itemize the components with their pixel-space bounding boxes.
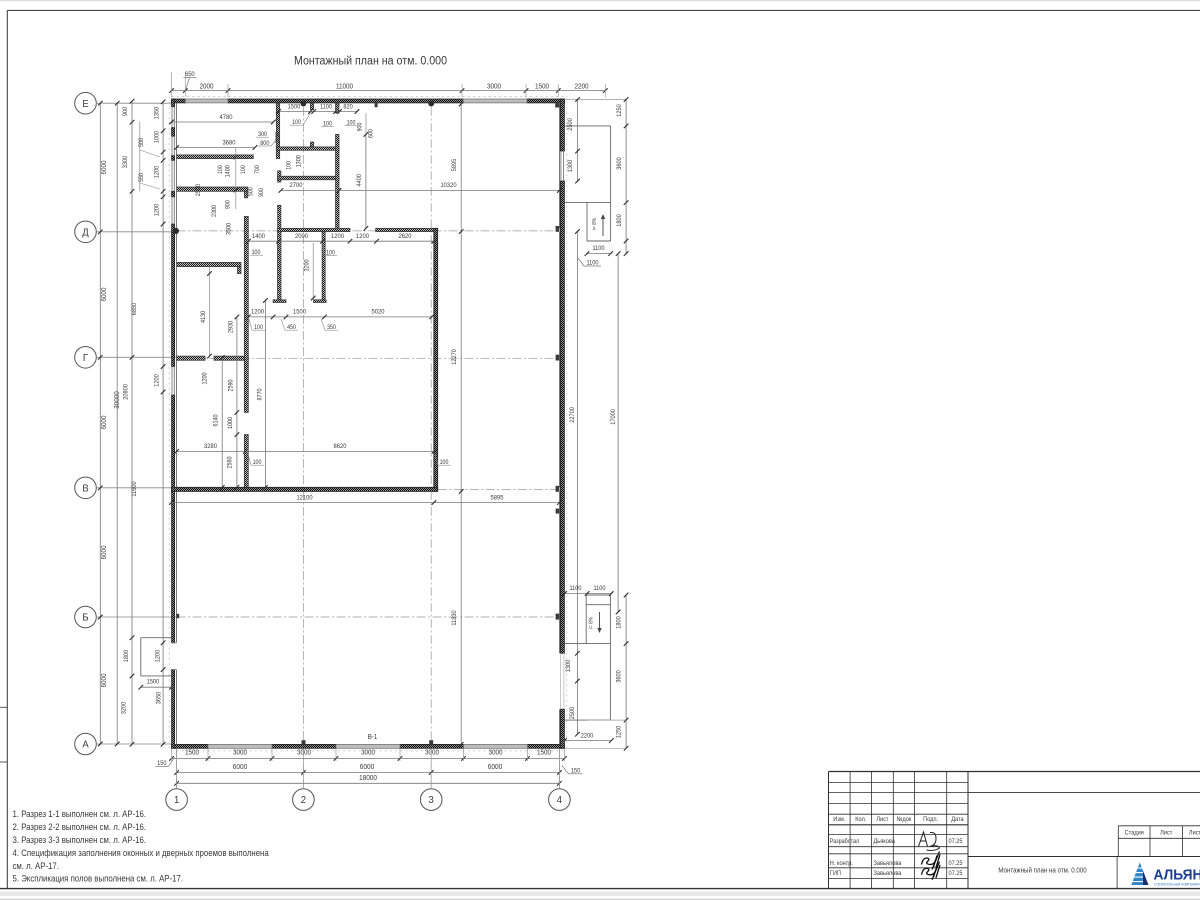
svg-text:1500: 1500 bbox=[293, 308, 306, 315]
svg-text:650: 650 bbox=[185, 71, 195, 78]
svg-text:6000: 6000 bbox=[100, 673, 107, 687]
svg-text:07.25: 07.25 bbox=[949, 870, 964, 878]
svg-text:1800: 1800 bbox=[124, 649, 130, 662]
svg-text:Завьялова: Завьялова bbox=[874, 859, 902, 867]
svg-text:Монтажный план на отм. 0.000: Монтажный план на отм. 0.000 bbox=[294, 55, 447, 67]
svg-text:2300: 2300 bbox=[212, 204, 218, 217]
svg-text:6000: 6000 bbox=[100, 160, 107, 174]
svg-text:6850: 6850 bbox=[132, 302, 138, 315]
svg-text:Монтажный план на отм. 0.000: Монтажный план на отм. 0.000 bbox=[998, 866, 1087, 874]
svg-text:2200: 2200 bbox=[574, 83, 588, 90]
svg-text:1500: 1500 bbox=[537, 749, 551, 756]
svg-text:3650: 3650 bbox=[156, 691, 162, 704]
svg-text:6000: 6000 bbox=[100, 545, 107, 559]
svg-text:1250: 1250 bbox=[617, 104, 623, 117]
svg-text:2500: 2500 bbox=[196, 183, 202, 196]
svg-text:Б: Б bbox=[82, 612, 88, 623]
svg-text:22700: 22700 bbox=[570, 407, 576, 423]
svg-text:№док: №док bbox=[896, 815, 911, 823]
svg-text:12270: 12270 bbox=[452, 349, 458, 365]
svg-text:Стадия: Стадия bbox=[1125, 829, 1144, 837]
svg-text:1000: 1000 bbox=[275, 132, 281, 144]
svg-text:500: 500 bbox=[248, 187, 254, 196]
svg-text:1. Разрез 1-1 выполнен см. л.: 1. Разрез 1-1 выполнен см. л. АР-16. bbox=[13, 809, 147, 820]
svg-text:5895: 5895 bbox=[452, 158, 458, 171]
svg-text:1200: 1200 bbox=[251, 308, 264, 315]
svg-text:Кол.: Кол. bbox=[855, 815, 866, 823]
svg-text:1200: 1200 bbox=[356, 233, 369, 240]
svg-text:2620: 2620 bbox=[399, 233, 412, 240]
svg-text:Завьялова: Завьялова bbox=[874, 870, 902, 878]
svg-text:Дата: Дата bbox=[951, 815, 964, 823]
svg-text:3. Разрез 3-3 выполнен см. л.: 3. Разрез 3-3 выполнен см. л. АР-16. bbox=[13, 834, 147, 845]
svg-text:3000: 3000 bbox=[361, 749, 375, 756]
svg-text:100: 100 bbox=[241, 165, 247, 174]
svg-text:1400: 1400 bbox=[225, 165, 231, 178]
svg-text:Разработал: Разработал bbox=[830, 839, 860, 846]
svg-text:1800: 1800 bbox=[617, 214, 623, 227]
svg-text:1800: 1800 bbox=[616, 616, 622, 629]
svg-text:8620: 8620 bbox=[334, 443, 347, 450]
svg-text:1: 1 bbox=[174, 795, 179, 806]
svg-text:3600: 3600 bbox=[616, 670, 622, 683]
svg-text:i= 8%: i= 8% bbox=[588, 616, 594, 629]
svg-text:3000: 3000 bbox=[233, 749, 247, 756]
svg-text:1100: 1100 bbox=[593, 586, 606, 592]
svg-text:11600: 11600 bbox=[132, 481, 138, 497]
svg-text:Д: Д bbox=[82, 227, 89, 238]
svg-text:3000: 3000 bbox=[488, 749, 502, 756]
svg-text:3600: 3600 bbox=[617, 157, 623, 170]
svg-text:Листов: Листов bbox=[1189, 829, 1200, 837]
svg-text:6140: 6140 bbox=[213, 414, 219, 427]
svg-text:30000: 30000 bbox=[114, 391, 121, 409]
svg-text:8770: 8770 bbox=[257, 388, 263, 401]
svg-text:2. Разрез 2-2 выполнен см. л.: 2. Разрез 2-2 выполнен см. л. АР-16. bbox=[13, 822, 147, 833]
svg-text:4400: 4400 bbox=[357, 173, 363, 186]
svg-text:4. Спецификация заполнения око: 4. Спецификация заполнения оконных и две… bbox=[13, 847, 270, 858]
svg-text:2700: 2700 bbox=[290, 182, 303, 189]
svg-text:20800: 20800 bbox=[123, 384, 129, 400]
svg-text:12100: 12100 bbox=[296, 494, 313, 501]
svg-text:11000: 11000 bbox=[336, 83, 353, 90]
svg-text:18000: 18000 bbox=[359, 775, 377, 782]
svg-text:Лист: Лист bbox=[1160, 829, 1172, 837]
svg-text:1400: 1400 bbox=[252, 233, 265, 240]
svg-text:2560: 2560 bbox=[227, 456, 233, 469]
svg-text:100: 100 bbox=[218, 165, 224, 174]
svg-text:3200: 3200 bbox=[304, 259, 310, 272]
svg-text:17000: 17000 bbox=[611, 409, 617, 425]
svg-text:550: 550 bbox=[139, 172, 145, 182]
svg-text:820: 820 bbox=[343, 104, 353, 110]
svg-text:2000: 2000 bbox=[199, 83, 213, 90]
svg-text:07.25: 07.25 bbox=[949, 838, 964, 846]
svg-text:Подп.: Подп. bbox=[923, 815, 938, 823]
svg-text:Лист: Лист bbox=[876, 815, 888, 823]
svg-text:1500: 1500 bbox=[147, 679, 160, 685]
svg-text:4: 4 bbox=[557, 795, 563, 806]
svg-text:2590: 2590 bbox=[228, 379, 234, 392]
svg-text:5. Экспликация полов выполнена: 5. Экспликация полов выполнена см. л. АР… bbox=[13, 873, 183, 884]
svg-text:4130: 4130 bbox=[201, 310, 207, 323]
svg-text:900: 900 bbox=[357, 123, 363, 132]
svg-text:1300: 1300 bbox=[568, 159, 574, 172]
svg-text:3200: 3200 bbox=[121, 701, 127, 714]
svg-text:В-1: В-1 bbox=[368, 734, 378, 741]
svg-text:1000: 1000 bbox=[154, 130, 160, 143]
svg-text:500: 500 bbox=[139, 137, 145, 147]
svg-text:см. л. АР-17.: см. л. АР-17. bbox=[13, 860, 59, 871]
svg-text:3680: 3680 bbox=[223, 139, 236, 146]
svg-text:строительная компания: строительная компания bbox=[1154, 881, 1200, 886]
svg-text:Г: Г bbox=[83, 353, 89, 364]
svg-text:А: А bbox=[82, 739, 89, 750]
svg-text:4780: 4780 bbox=[220, 113, 233, 120]
svg-text:3000: 3000 bbox=[297, 749, 311, 756]
svg-text:900: 900 bbox=[225, 200, 231, 209]
svg-text:1500: 1500 bbox=[288, 104, 301, 110]
svg-text:3300: 3300 bbox=[123, 155, 129, 168]
svg-text:1200: 1200 bbox=[154, 203, 160, 216]
svg-text:100: 100 bbox=[286, 161, 292, 170]
svg-text:1350: 1350 bbox=[154, 106, 160, 119]
svg-text:1500: 1500 bbox=[185, 749, 199, 756]
svg-text:6000: 6000 bbox=[100, 287, 107, 301]
svg-text:6000: 6000 bbox=[233, 764, 248, 771]
svg-text:В: В bbox=[82, 483, 88, 494]
svg-text:900: 900 bbox=[123, 106, 129, 116]
svg-text:2930: 2930 bbox=[228, 320, 234, 333]
svg-text:1000: 1000 bbox=[228, 416, 234, 429]
svg-text:Е: Е bbox=[82, 99, 89, 110]
svg-text:5020: 5020 bbox=[372, 308, 385, 315]
svg-text:900: 900 bbox=[259, 188, 265, 197]
svg-text:1200: 1200 bbox=[202, 372, 208, 385]
svg-text:11830: 11830 bbox=[452, 610, 458, 626]
svg-text:1300: 1300 bbox=[566, 659, 572, 672]
svg-text:3280: 3280 bbox=[204, 443, 217, 450]
svg-text:Н. контр.: Н. контр. bbox=[830, 859, 853, 867]
svg-text:07.25: 07.25 bbox=[949, 859, 964, 867]
svg-text:i= 8%: i= 8% bbox=[592, 217, 598, 230]
svg-text:1300: 1300 bbox=[296, 155, 302, 168]
svg-text:150: 150 bbox=[157, 761, 167, 767]
svg-text:2: 2 bbox=[301, 795, 306, 806]
svg-text:2500: 2500 bbox=[568, 118, 574, 131]
svg-text:3000: 3000 bbox=[425, 749, 439, 756]
svg-text:1500: 1500 bbox=[535, 83, 549, 90]
svg-text:Дьякова: Дьякова bbox=[874, 838, 896, 846]
svg-text:1100: 1100 bbox=[320, 104, 333, 110]
svg-text:1200: 1200 bbox=[331, 233, 344, 240]
svg-text:ГИП: ГИП bbox=[830, 870, 841, 878]
svg-text:600: 600 bbox=[368, 129, 374, 138]
svg-text:700: 700 bbox=[255, 165, 261, 174]
svg-text:1200: 1200 bbox=[154, 374, 160, 387]
svg-text:1100: 1100 bbox=[592, 246, 605, 252]
svg-text:6000: 6000 bbox=[488, 764, 503, 771]
svg-text:Изм.: Изм. bbox=[833, 815, 845, 823]
svg-text:10320: 10320 bbox=[440, 182, 457, 189]
svg-text:3000: 3000 bbox=[487, 83, 501, 90]
svg-text:1100: 1100 bbox=[569, 586, 582, 592]
svg-text:1200: 1200 bbox=[155, 649, 161, 662]
svg-text:3500: 3500 bbox=[226, 222, 232, 235]
svg-text:6000: 6000 bbox=[100, 415, 107, 429]
svg-text:1250: 1250 bbox=[616, 725, 622, 738]
svg-text:2200: 2200 bbox=[581, 733, 594, 739]
svg-text:5895: 5895 bbox=[491, 494, 504, 501]
svg-text:2000: 2000 bbox=[295, 233, 308, 240]
svg-text:3: 3 bbox=[429, 795, 434, 806]
svg-text:2500: 2500 bbox=[570, 706, 576, 719]
svg-text:6000: 6000 bbox=[360, 764, 375, 771]
svg-text:1200: 1200 bbox=[154, 165, 160, 178]
